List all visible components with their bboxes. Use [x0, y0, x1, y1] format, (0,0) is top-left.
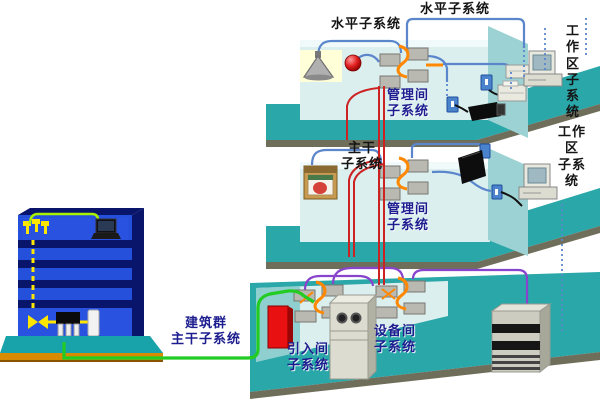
structured-cabling-diagram: 水平子系统 水平子系统 工作区 子系统 管理间 子系统 工作区 子系统 主干 子… — [0, 0, 600, 400]
hose-cabinet-icon — [304, 166, 337, 199]
middle-partition-wall — [488, 148, 528, 256]
diagram-canvas — [0, 0, 600, 400]
label-backbone-subsystem: 主干 子系统 — [341, 141, 383, 174]
label-horizontal-subsystem-1: 水平子系统 — [331, 17, 401, 33]
wall-outlet-icon — [481, 75, 492, 90]
ground-strip-shadow — [0, 360, 163, 362]
desktop-computer-icon — [519, 164, 557, 199]
bottom-floor — [250, 268, 600, 399]
tank-icon — [88, 310, 99, 336]
label-management-subsystem-middle: 管理间 子系统 — [387, 202, 429, 235]
laptop-icon — [91, 219, 121, 239]
desktop-computer-icon — [524, 51, 562, 86]
building-base — [0, 336, 163, 353]
label-horizontal-subsystem-2: 水平子系统 — [420, 2, 490, 18]
alarm-bell-icon — [345, 55, 361, 71]
wall-outlet-icon — [492, 185, 502, 199]
label-campus-backbone-subsystem: 建筑群 主干子系统 — [171, 316, 241, 349]
building-icon — [0, 208, 163, 362]
label-work-area-subsystem-top: 工作区 子系统 — [560, 24, 587, 122]
sprinkler-icon — [23, 219, 49, 234]
rack-legs-icon — [56, 312, 80, 336]
top-floor — [266, 19, 600, 147]
equipment-cabinet-icon — [330, 295, 376, 379]
label-management-subsystem-top: 管理间 子系统 — [387, 88, 429, 121]
server-rack-icon — [492, 304, 550, 372]
label-work-area-subsystem-middle: 工作区 子系统 — [558, 125, 586, 190]
middle-floor — [266, 144, 600, 269]
label-entrance-room-subsystem: 引入间 子系统 — [287, 342, 329, 375]
label-equipment-room-subsystem: 设备间 子系统 — [374, 324, 416, 357]
